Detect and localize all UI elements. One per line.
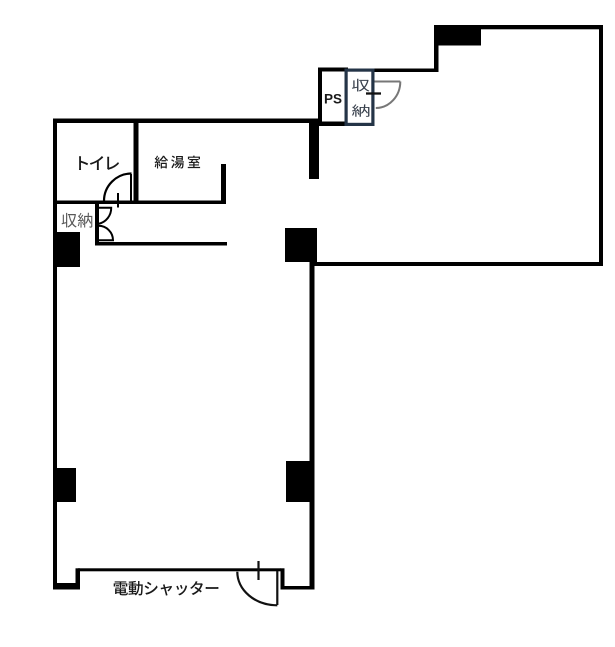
- svg-text:PS: PS: [324, 92, 342, 107]
